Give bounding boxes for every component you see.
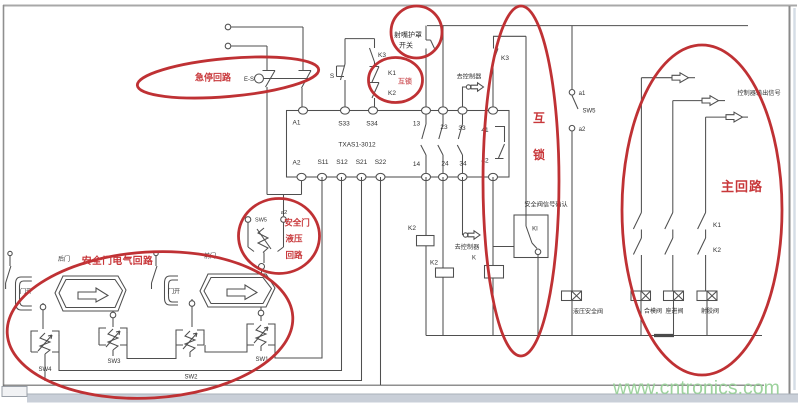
svg-text:S21: S21 — [356, 159, 368, 166]
svg-text:SW3: SW3 — [107, 359, 121, 365]
svg-text:E-S: E-S — [244, 77, 254, 83]
svg-text:K1: K1 — [388, 70, 396, 77]
svg-text:A1: A1 — [293, 120, 301, 127]
svg-text:24: 24 — [441, 161, 449, 168]
svg-text:K2: K2 — [388, 90, 396, 97]
svg-text:www.cntronics.com: www.cntronics.com — [612, 377, 780, 399]
svg-text:射嘴护罩: 射嘴护罩 — [394, 30, 422, 39]
svg-text:SW5: SW5 — [582, 109, 596, 115]
svg-text:TXAS1-3012: TXAS1-3012 — [338, 142, 376, 149]
svg-text:K: K — [472, 256, 476, 262]
svg-text:K2: K2 — [408, 225, 416, 232]
svg-text:开关: 开关 — [399, 41, 413, 50]
svg-text:安全门电气回路: 安全门电气回路 — [82, 254, 153, 267]
svg-text:a1: a1 — [579, 91, 586, 97]
svg-text:安全门: 安全门 — [284, 218, 310, 228]
svg-text:锁: 锁 — [533, 147, 545, 162]
svg-text:S33: S33 — [338, 121, 350, 128]
svg-text:座进阀: 座进阀 — [665, 307, 683, 315]
svg-text:S34: S34 — [366, 121, 378, 128]
svg-text:S: S — [330, 73, 335, 80]
svg-text:K2: K2 — [430, 260, 438, 267]
svg-text:去控制器: 去控制器 — [455, 243, 481, 251]
svg-text:主回路: 主回路 — [721, 179, 763, 194]
svg-text:合模阀: 合模阀 — [644, 307, 662, 315]
svg-text:S11: S11 — [317, 159, 328, 166]
svg-text:急停回路: 急停回路 — [195, 72, 232, 83]
svg-text:14: 14 — [413, 161, 421, 168]
svg-text:23: 23 — [440, 124, 448, 131]
svg-text:A2: A2 — [293, 160, 301, 167]
svg-text:K1: K1 — [713, 222, 721, 229]
svg-text:KI: KI — [532, 227, 538, 233]
svg-text:SW2: SW2 — [184, 375, 198, 381]
svg-text:射胶阀: 射胶阀 — [701, 307, 719, 315]
svg-text:S12: S12 — [336, 159, 348, 166]
svg-text:13: 13 — [413, 121, 421, 128]
svg-text:a2: a2 — [579, 127, 586, 133]
svg-text:a2: a2 — [281, 210, 287, 216]
svg-text:液压: 液压 — [285, 234, 303, 244]
svg-text:34: 34 — [459, 161, 467, 168]
svg-text:门开: 门开 — [168, 288, 180, 296]
svg-text:安全阀信号确认: 安全阀信号确认 — [524, 201, 567, 209]
svg-text:回路: 回路 — [285, 250, 303, 260]
svg-text:SW4: SW4 — [38, 367, 52, 373]
svg-text:SW5: SW5 — [255, 218, 267, 224]
svg-text:33: 33 — [458, 125, 466, 132]
svg-text:后门: 后门 — [58, 255, 70, 263]
svg-text:S22: S22 — [375, 159, 387, 166]
svg-text:K3: K3 — [501, 55, 509, 62]
svg-text:互: 互 — [533, 111, 545, 125]
svg-text:K2: K2 — [713, 247, 721, 254]
svg-text:去控制器: 去控制器 — [457, 73, 483, 81]
svg-text:液压安全阀: 液压安全阀 — [573, 308, 603, 316]
svg-text:互锁: 互锁 — [398, 77, 412, 86]
